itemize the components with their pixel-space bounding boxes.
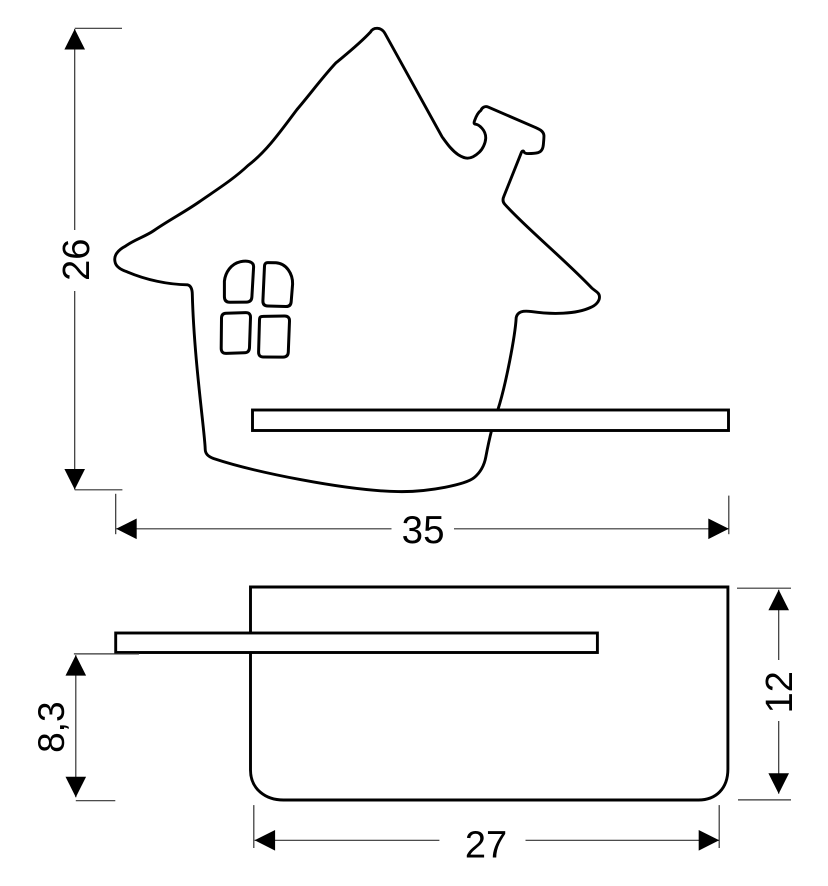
svg-text:35: 35 [402, 509, 445, 552]
svg-text:26: 26 [56, 239, 98, 281]
svg-text:8,3: 8,3 [31, 701, 72, 752]
svg-text:12: 12 [759, 671, 801, 713]
svg-text:27: 27 [465, 824, 507, 866]
